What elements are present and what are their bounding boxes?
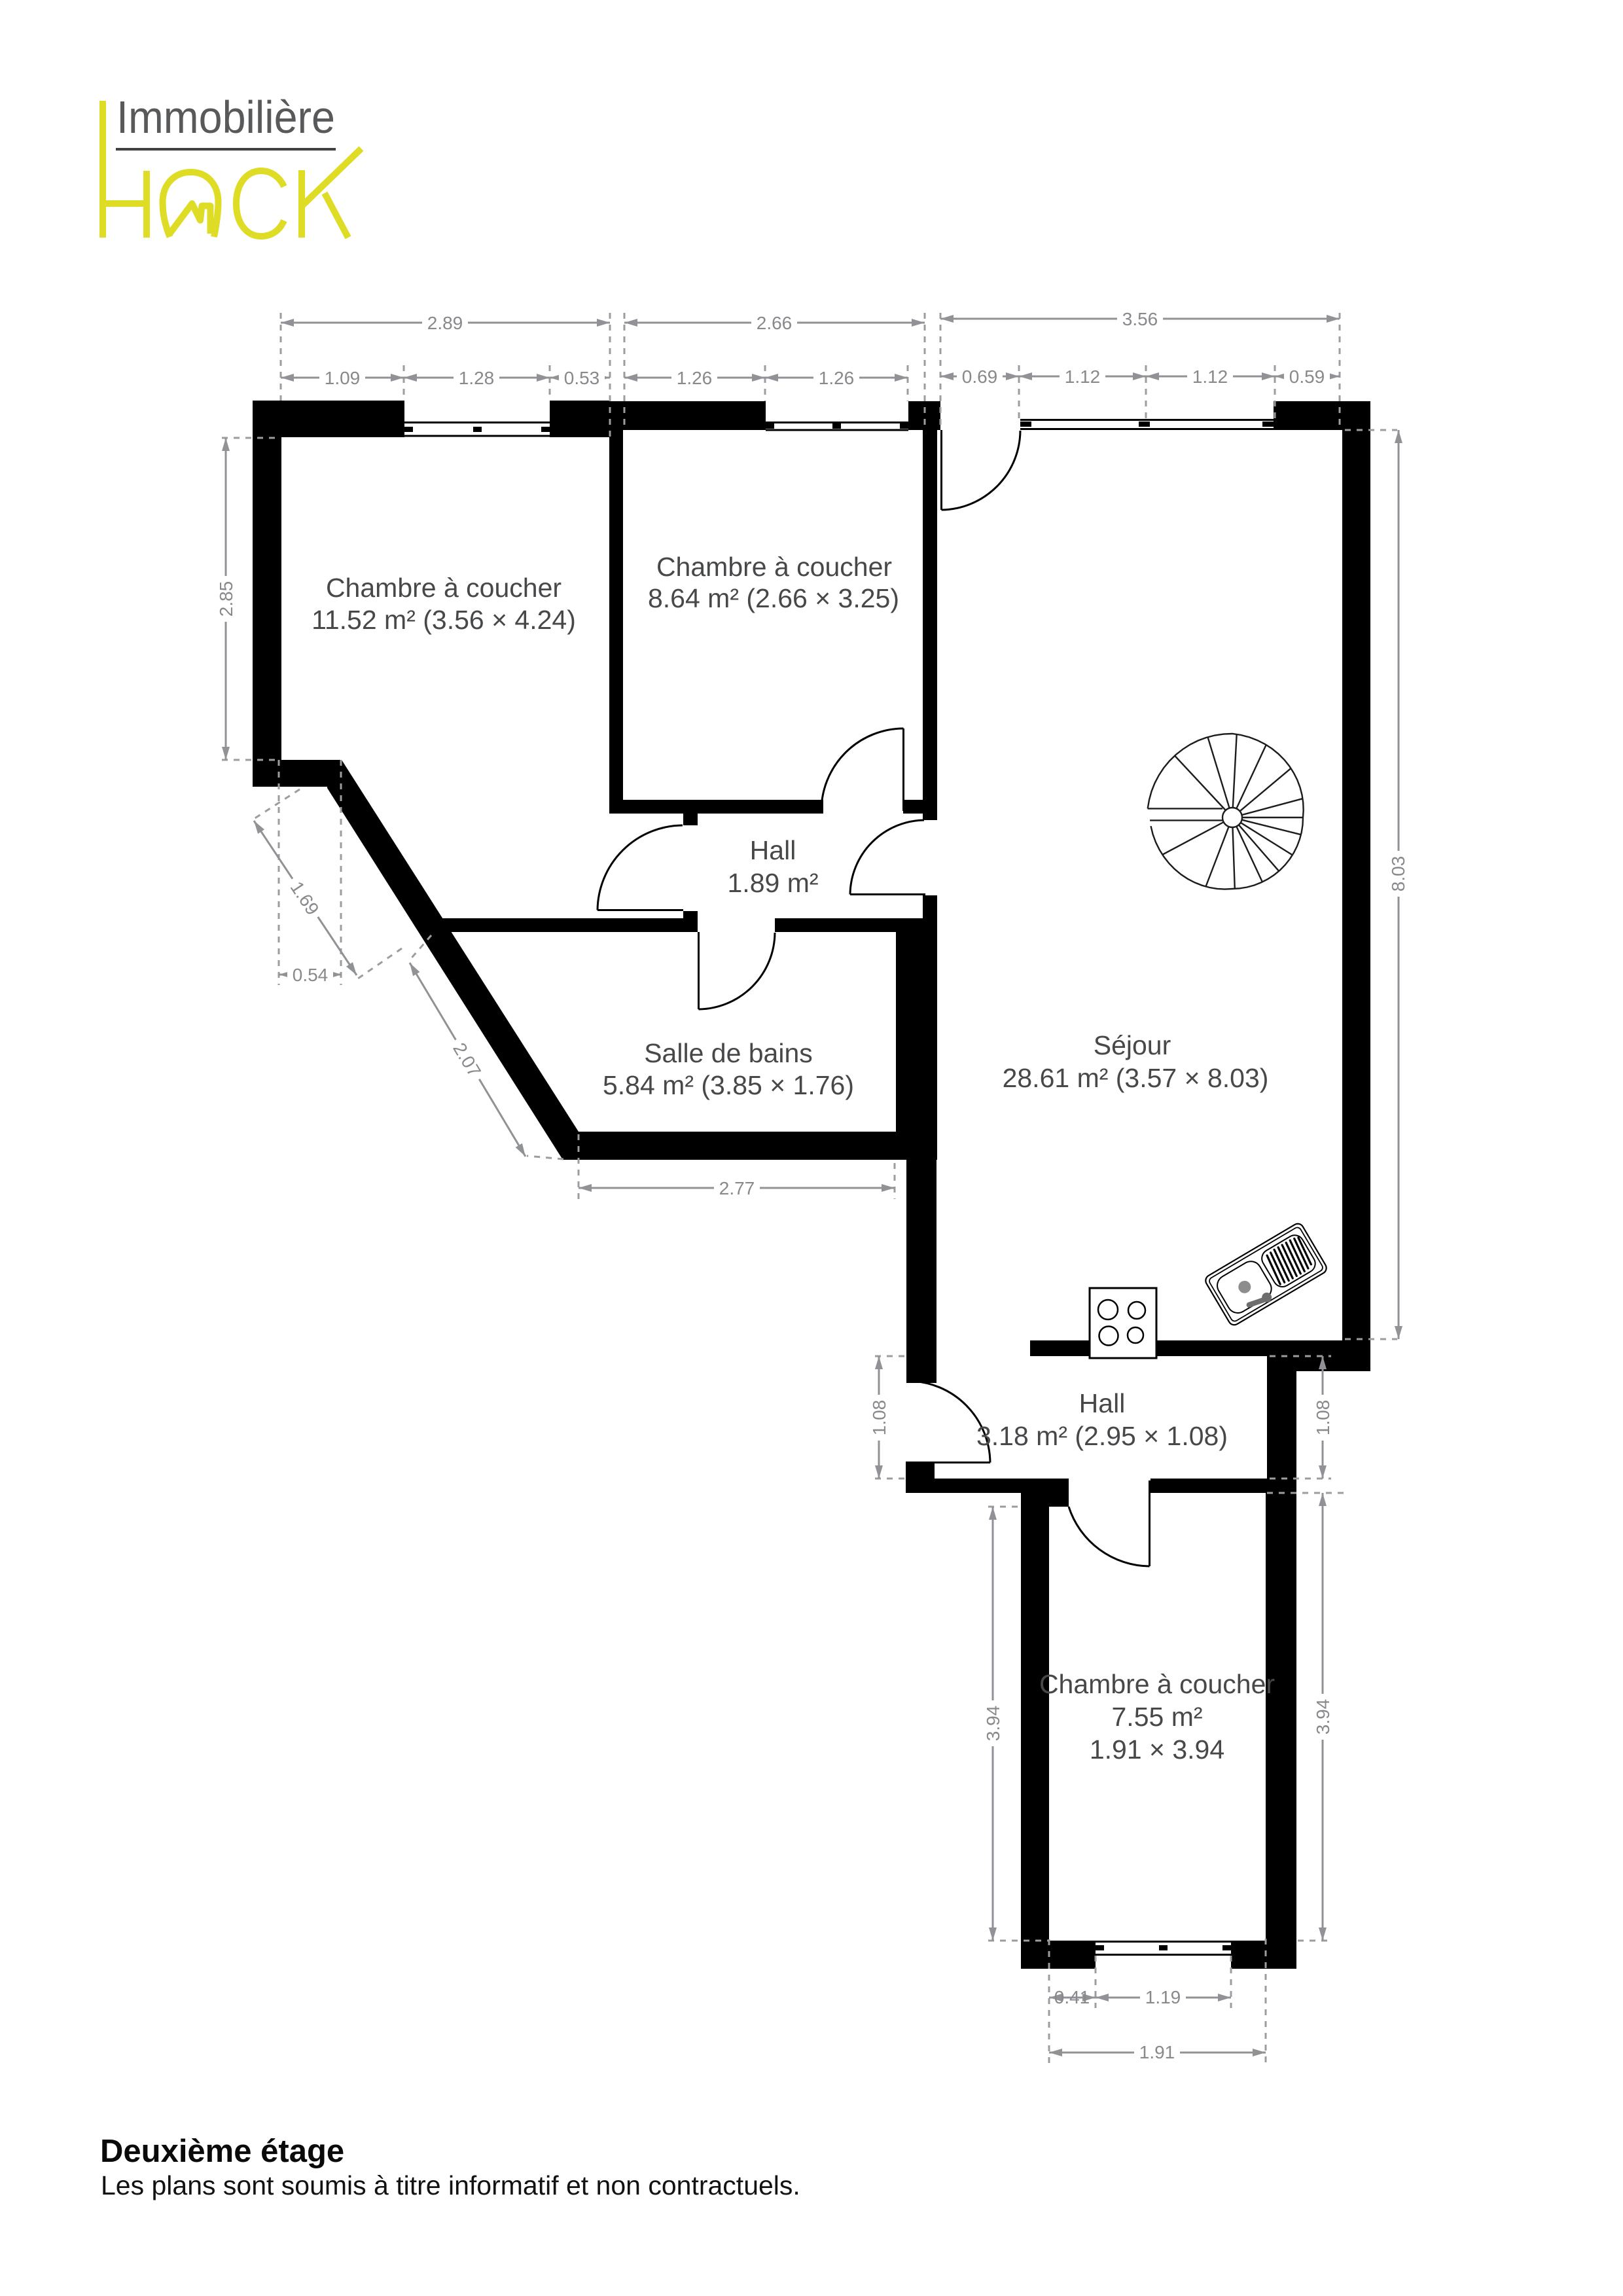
svg-text:1.12: 1.12 bbox=[1192, 367, 1228, 387]
svg-text:Salle de bains: Salle de bains bbox=[644, 1038, 813, 1068]
svg-text:2.85: 2.85 bbox=[216, 581, 236, 617]
svg-text:3.94: 3.94 bbox=[1313, 1699, 1333, 1735]
svg-text:Hall: Hall bbox=[750, 835, 796, 865]
svg-text:1.89 m²: 1.89 m² bbox=[728, 868, 819, 898]
svg-text:1.08: 1.08 bbox=[1313, 1400, 1333, 1436]
svg-text:1.26: 1.26 bbox=[819, 368, 855, 388]
svg-text:0.54: 0.54 bbox=[293, 965, 329, 985]
svg-text:1.28: 1.28 bbox=[459, 368, 495, 388]
svg-text:0.69: 0.69 bbox=[962, 367, 998, 387]
svg-text:Hall: Hall bbox=[1079, 1388, 1126, 1418]
svg-text:Deuxième étage: Deuxième étage bbox=[100, 2134, 344, 2169]
svg-text:11.52 m² (3.56 × 4.24): 11.52 m² (3.56 × 4.24) bbox=[312, 605, 576, 635]
svg-text:5.84 m² (3.85 × 1.76): 5.84 m² (3.85 × 1.76) bbox=[603, 1070, 854, 1100]
svg-text:0.41: 0.41 bbox=[1054, 1987, 1090, 2007]
svg-text:2.66: 2.66 bbox=[757, 313, 793, 333]
svg-text:0.59: 0.59 bbox=[1289, 367, 1325, 387]
svg-text:1.91 × 3.94: 1.91 × 3.94 bbox=[1090, 1734, 1224, 1765]
svg-text:3.56: 3.56 bbox=[1122, 309, 1158, 329]
svg-text:8.03: 8.03 bbox=[1388, 856, 1408, 892]
svg-text:28.61 m² (3.57 × 8.03): 28.61 m² (3.57 × 8.03) bbox=[1003, 1063, 1269, 1093]
svg-text:Chambre à coucher: Chambre à coucher bbox=[1039, 1669, 1275, 1699]
svg-text:1.91: 1.91 bbox=[1139, 2042, 1175, 2062]
svg-text:3.18 m² (2.95 × 1.08): 3.18 m² (2.95 × 1.08) bbox=[976, 1421, 1228, 1451]
svg-text:3.94: 3.94 bbox=[983, 1706, 1003, 1742]
svg-text:1.26: 1.26 bbox=[677, 368, 713, 388]
svg-text:2.77: 2.77 bbox=[719, 1178, 755, 1198]
svg-text:1.12: 1.12 bbox=[1065, 367, 1101, 387]
svg-text:Chambre à coucher: Chambre à coucher bbox=[326, 573, 562, 603]
svg-text:1.08: 1.08 bbox=[869, 1400, 889, 1436]
svg-text:Les plans sont soumis à titre: Les plans sont soumis à titre informatif… bbox=[101, 2170, 800, 2200]
svg-text:0.53: 0.53 bbox=[564, 368, 600, 388]
svg-text:Séjour: Séjour bbox=[1094, 1030, 1171, 1060]
svg-text:7.55 m²: 7.55 m² bbox=[1112, 1702, 1203, 1732]
svg-text:1.19: 1.19 bbox=[1145, 1987, 1181, 2007]
svg-text:8.64 m² (2.66 × 3.25): 8.64 m² (2.66 × 3.25) bbox=[648, 583, 899, 613]
svg-text:2.89: 2.89 bbox=[427, 313, 463, 333]
svg-text:Chambre à coucher: Chambre à coucher bbox=[656, 552, 892, 582]
svg-text:1.09: 1.09 bbox=[325, 368, 361, 388]
svg-text:Immobilière: Immobilière bbox=[116, 92, 335, 143]
